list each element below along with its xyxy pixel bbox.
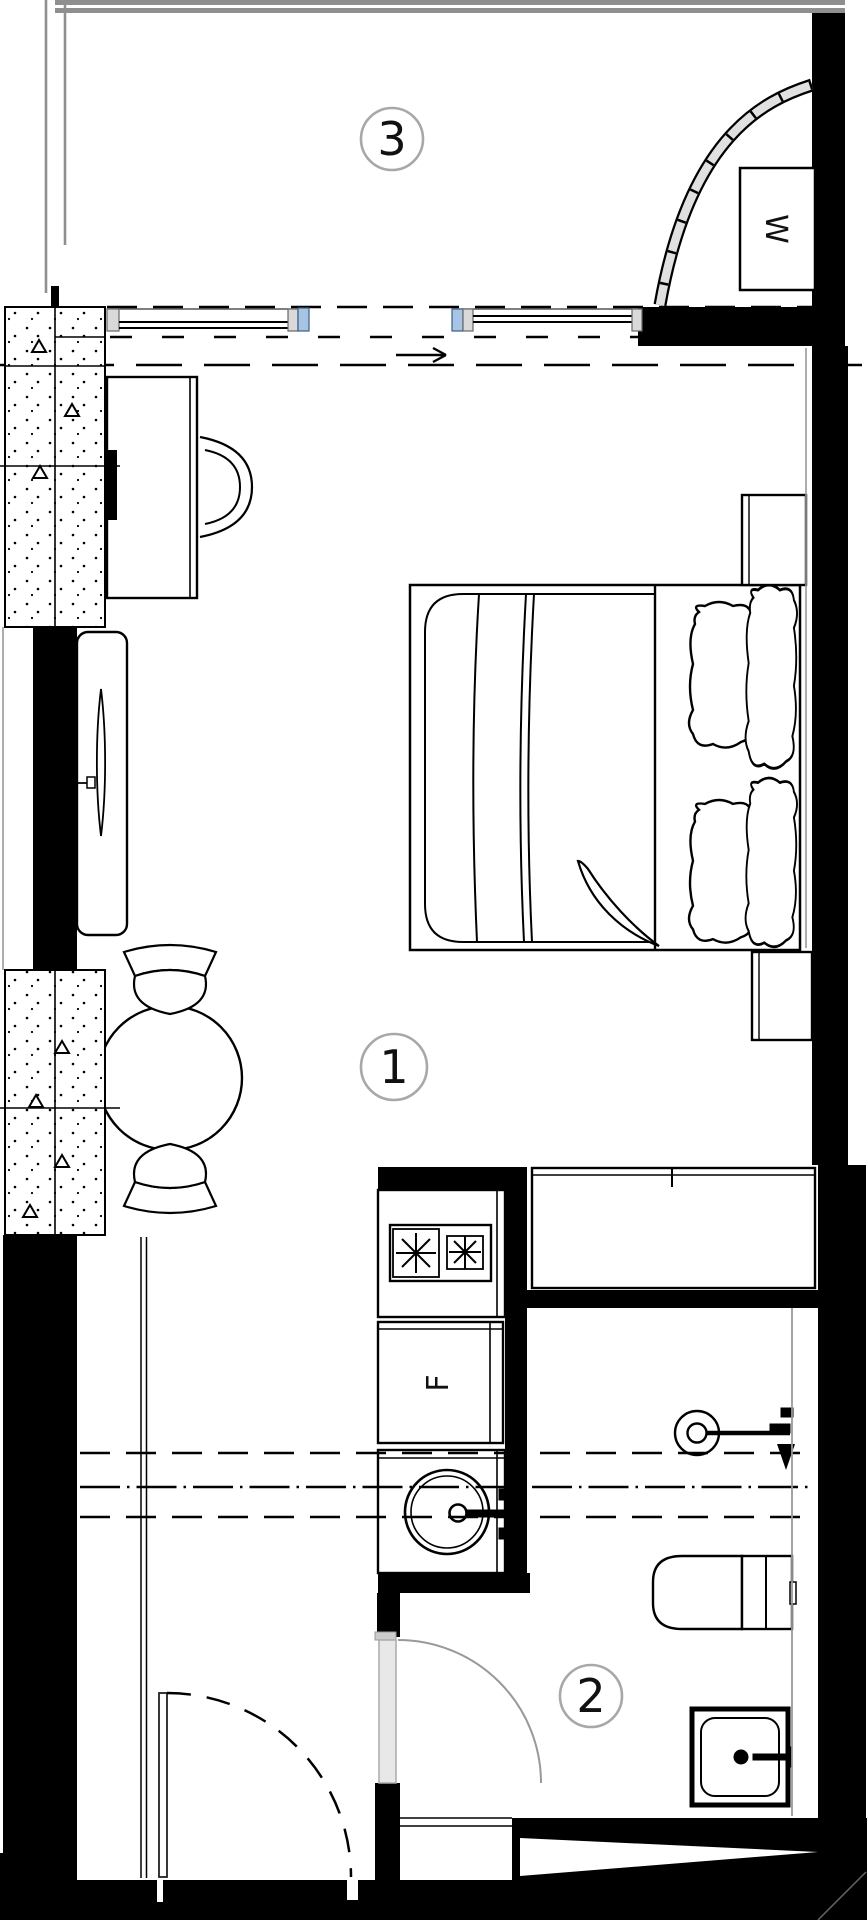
bathroom-step (400, 1818, 512, 1826)
tv (97, 689, 105, 836)
room-label-2: 2 (560, 1665, 622, 1727)
sliding-window-right (452, 309, 642, 331)
partition-line (141, 1237, 147, 1878)
dining-chair-top (124, 945, 216, 1014)
kitchen-sink-counter (378, 1450, 506, 1573)
dining-chair-bottom (124, 1144, 216, 1213)
nightstand-bottom (752, 952, 812, 1040)
sliding-window-left (107, 308, 309, 331)
toilet (653, 1556, 796, 1629)
kitchen-hob-counter (378, 1190, 505, 1317)
washbasin (692, 1709, 792, 1805)
slide-arrow (396, 348, 446, 362)
pillow (689, 602, 755, 748)
desk (107, 377, 197, 598)
door-jamb-gap (347, 1880, 358, 1900)
fridge-label: F (421, 1374, 456, 1391)
glass-pane (298, 308, 309, 331)
door-swing-arc (398, 1640, 541, 1783)
concrete-pier-upper (5, 307, 105, 627)
desk-chair (200, 437, 252, 537)
drain (734, 1750, 748, 1764)
balcony-edge (55, 0, 845, 5)
room-label-3: 3 (361, 108, 423, 170)
floor-plan-drawing: 3 1 2 W F (0, 0, 867, 1920)
door-leaf (159, 1693, 167, 1877)
bed (410, 585, 800, 950)
door-leaf (379, 1640, 396, 1783)
dining-table (98, 1006, 242, 1150)
pillow (746, 585, 797, 768)
pillow (746, 778, 797, 947)
room-number: 2 (576, 1669, 605, 1723)
shower-mixer (675, 1408, 795, 1470)
glass-pane (452, 309, 463, 331)
entry-door (159, 1693, 351, 1877)
room-label-1: 1 (361, 1034, 427, 1100)
concrete-pier-lower (5, 970, 105, 1235)
nightstand-top (742, 495, 806, 585)
room-number: 1 (379, 1040, 408, 1094)
balcony-edge (55, 8, 845, 13)
floor-plan: 3 1 2 W F (0, 0, 867, 1920)
door-swing-arc (167, 1693, 351, 1877)
closet (532, 1168, 815, 1288)
washer-label: W (758, 214, 793, 244)
door-jamb-gap (157, 1880, 163, 1902)
bathroom-door (375, 1632, 541, 1783)
tv-cabinet (77, 632, 127, 935)
room-number: 3 (377, 112, 406, 166)
